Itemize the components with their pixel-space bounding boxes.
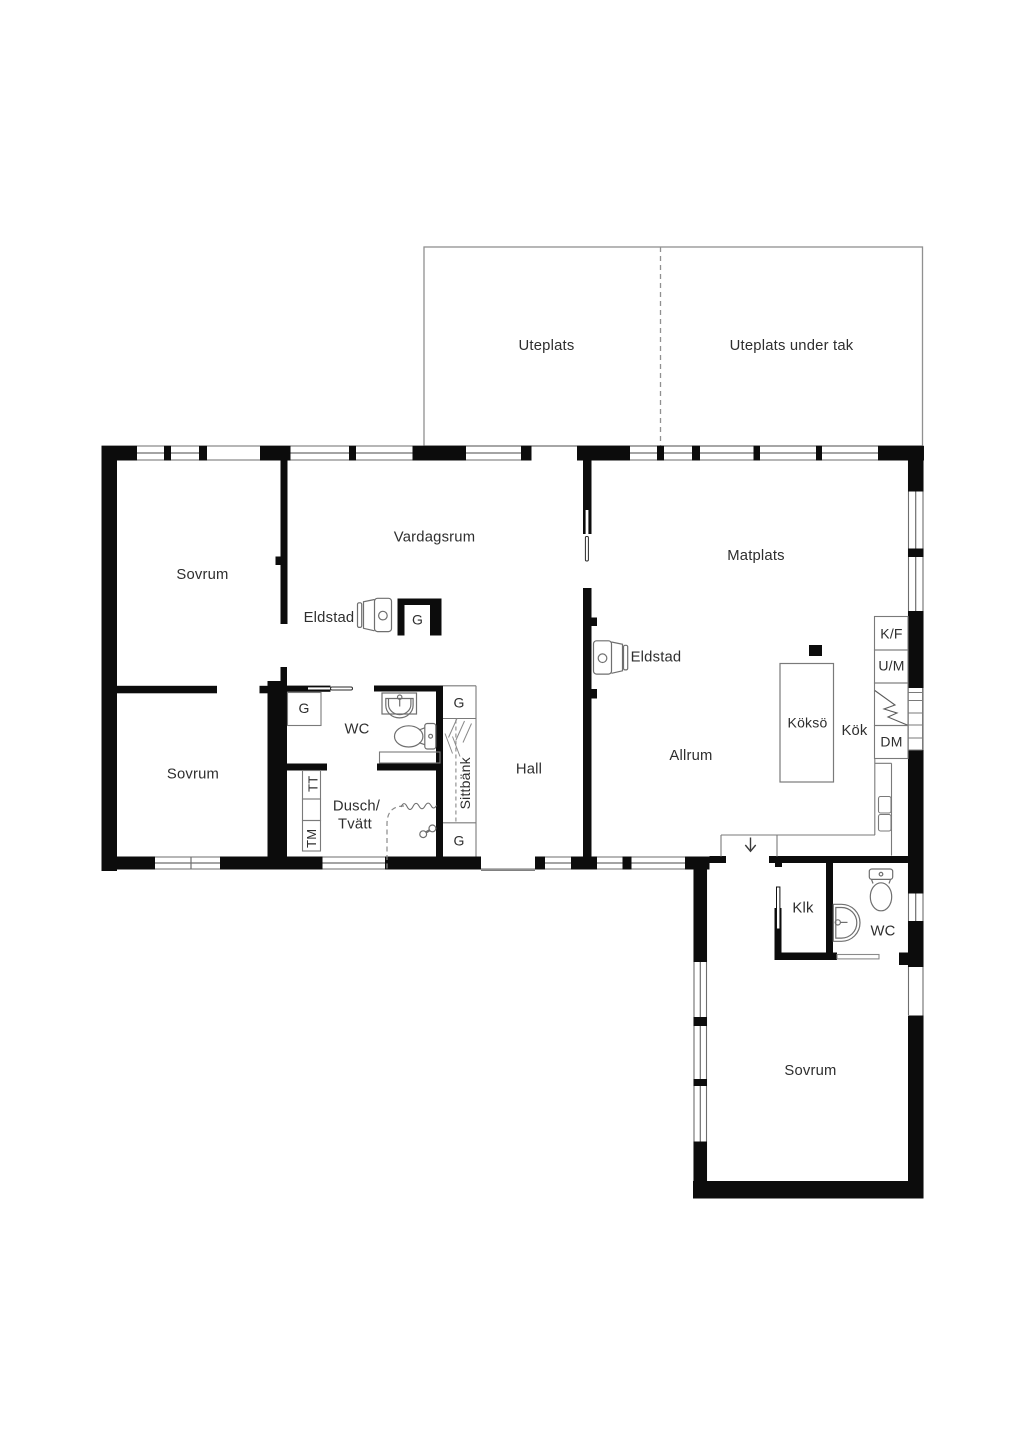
svg-text:Klk: Klk bbox=[792, 901, 814, 917]
svg-text:Matplats: Matplats bbox=[727, 548, 785, 564]
svg-text:TT: TT bbox=[306, 776, 321, 792]
svg-text:Tvätt: Tvätt bbox=[338, 817, 372, 833]
svg-text:Sovrum: Sovrum bbox=[176, 567, 228, 583]
svg-text:Sovrum: Sovrum bbox=[167, 767, 219, 783]
svg-text:Vardagsrum: Vardagsrum bbox=[394, 530, 476, 546]
svg-text:Uteplats under tak: Uteplats under tak bbox=[730, 338, 854, 354]
svg-text:G: G bbox=[453, 695, 464, 711]
svg-text:Sovrum: Sovrum bbox=[784, 1063, 836, 1079]
svg-text:DM: DM bbox=[880, 734, 902, 750]
svg-text:Eldstad: Eldstad bbox=[304, 610, 355, 626]
svg-text:K/F: K/F bbox=[880, 626, 902, 642]
svg-text:G: G bbox=[412, 612, 423, 628]
svg-text:G: G bbox=[453, 833, 464, 849]
svg-text:Sittbänk: Sittbänk bbox=[457, 756, 473, 809]
svg-text:Eldstad: Eldstad bbox=[631, 650, 682, 666]
svg-text:Köksö: Köksö bbox=[788, 715, 828, 731]
svg-text:TM: TM bbox=[304, 829, 319, 848]
svg-text:Uteplats: Uteplats bbox=[519, 338, 575, 354]
svg-text:WC: WC bbox=[870, 924, 895, 940]
svg-text:Kök: Kök bbox=[841, 723, 867, 739]
svg-text:U/M: U/M bbox=[878, 658, 904, 674]
svg-text:Allrum: Allrum bbox=[669, 748, 712, 764]
svg-text:WC: WC bbox=[344, 722, 369, 738]
svg-text:Hall: Hall bbox=[516, 762, 542, 778]
svg-text:Dusch/: Dusch/ bbox=[333, 799, 381, 815]
svg-text:G: G bbox=[298, 700, 309, 716]
